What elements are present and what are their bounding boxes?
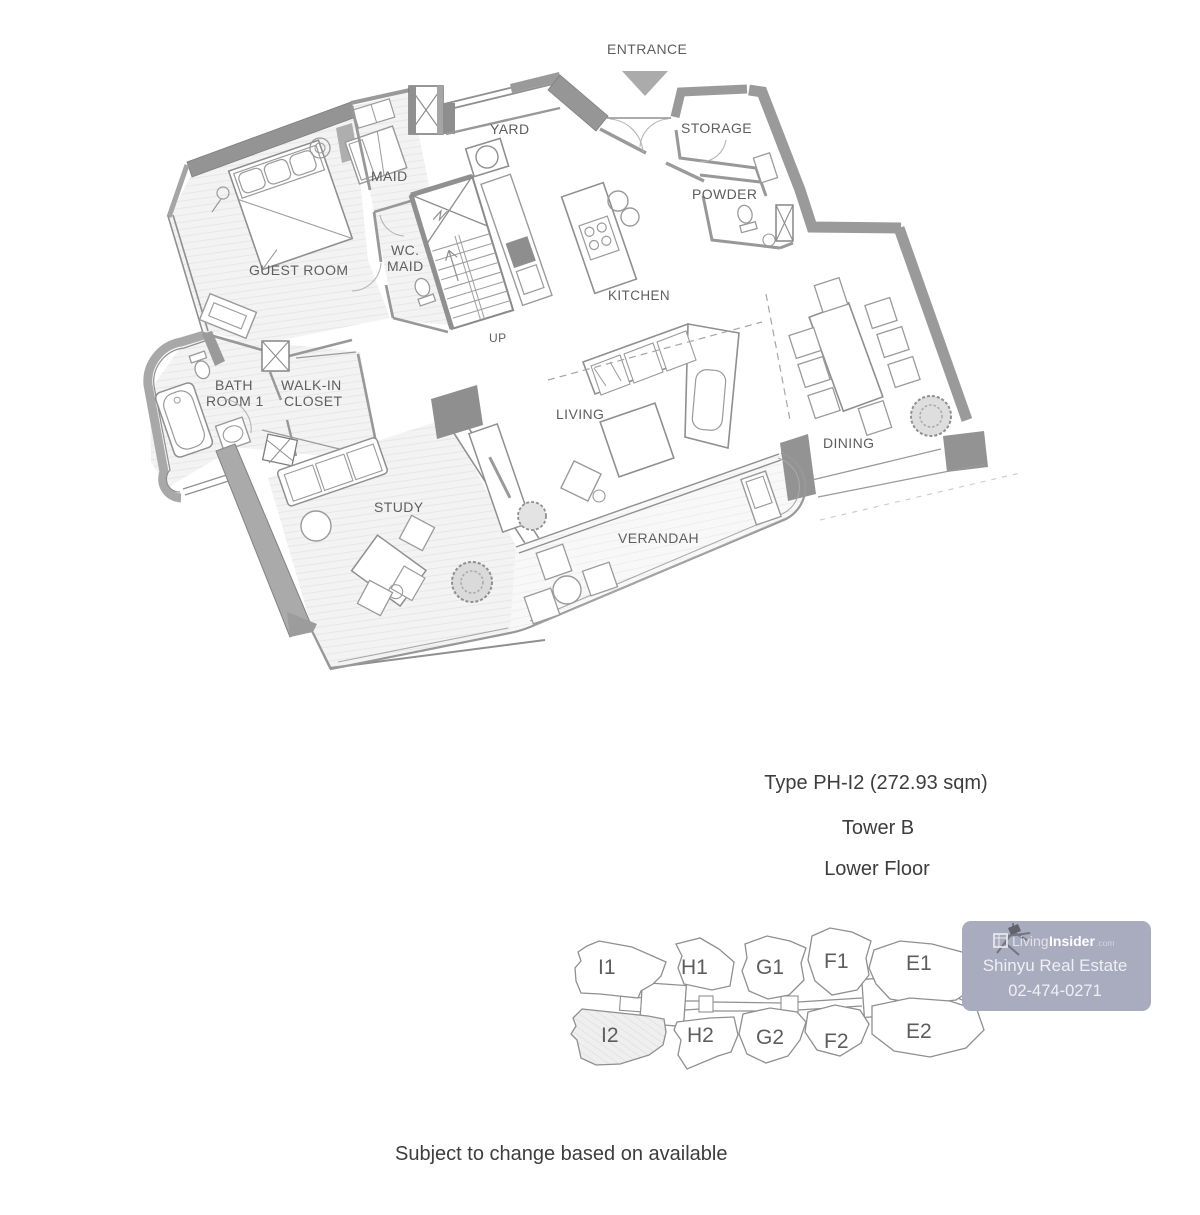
svg-text:STORAGE: STORAGE — [681, 120, 752, 136]
svg-text:MAID: MAID — [387, 258, 424, 274]
svg-text:GUEST ROOM: GUEST ROOM — [249, 262, 348, 278]
svg-text:G2: G2 — [756, 1026, 784, 1049]
svg-text:Lower Floor: Lower Floor — [824, 858, 930, 880]
svg-text:STUDY: STUDY — [374, 499, 424, 515]
svg-text:LIVING: LIVING — [556, 406, 604, 422]
svg-text:F1: F1 — [824, 950, 849, 973]
svg-text:I1: I1 — [598, 956, 616, 979]
svg-text:Tower B: Tower B — [842, 817, 914, 839]
svg-text:YARD: YARD — [490, 121, 529, 137]
svg-text:Shinyu Real Estate: Shinyu Real Estate — [983, 956, 1128, 975]
svg-text:F2: F2 — [824, 1030, 849, 1053]
svg-text:WALK-IN: WALK-IN — [281, 377, 342, 393]
svg-text:H2: H2 — [687, 1024, 714, 1047]
svg-text:ENTRANCE: ENTRANCE — [607, 41, 687, 57]
svg-text:KITCHEN: KITCHEN — [608, 288, 670, 303]
svg-text:Subject to change based on ava: Subject to change based on available — [395, 1143, 727, 1165]
svg-text:Type PH-I2 (272.93 sqm): Type PH-I2 (272.93 sqm) — [764, 772, 987, 794]
svg-text:.com: .com — [1096, 938, 1114, 948]
svg-text:VERANDAH: VERANDAH — [618, 530, 699, 546]
svg-text:E1: E1 — [906, 952, 932, 975]
svg-text:02-474-0271: 02-474-0271 — [1008, 982, 1102, 1000]
svg-text:MAID: MAID — [371, 168, 408, 184]
svg-text:UP: UP — [489, 331, 506, 345]
svg-text:E2: E2 — [906, 1020, 932, 1043]
svg-text:Living: Living — [1012, 933, 1049, 949]
svg-text:H1: H1 — [681, 956, 708, 979]
svg-text:CLOSET: CLOSET — [284, 393, 342, 409]
svg-text:POWDER: POWDER — [692, 186, 757, 202]
svg-text:G1: G1 — [756, 956, 784, 979]
svg-text:I2: I2 — [601, 1024, 619, 1047]
svg-text:BATH: BATH — [215, 377, 253, 393]
svg-text:WC.: WC. — [391, 242, 419, 258]
svg-text:ROOM 1: ROOM 1 — [206, 393, 264, 409]
svg-text:Insider: Insider — [1049, 933, 1095, 949]
svg-text:DINING: DINING — [823, 435, 874, 451]
